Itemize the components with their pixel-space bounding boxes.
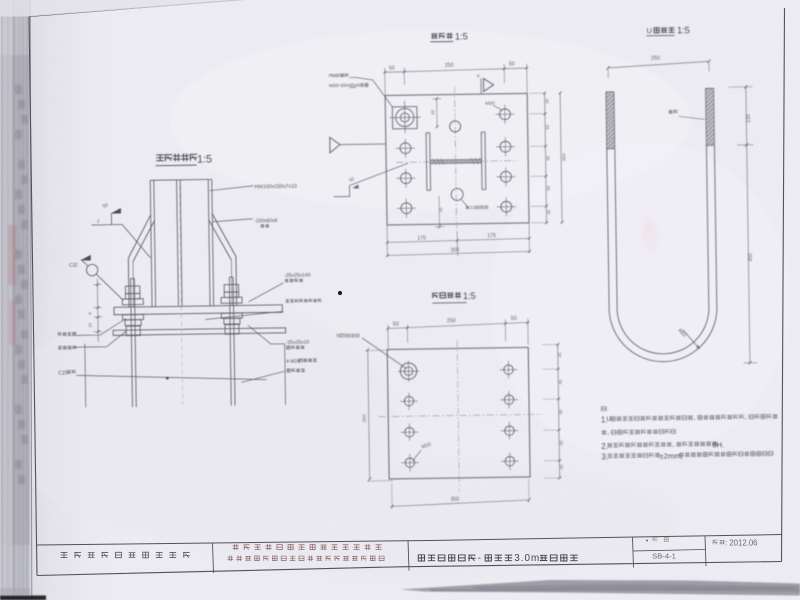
svg-text:,: , <box>672 442 674 449</box>
svg-text:3.0m: 3.0m <box>514 553 539 564</box>
svg-text:65: 65 <box>430 109 435 115</box>
svg-text:15: 15 <box>87 322 92 327</box>
svg-text:45: 45 <box>546 209 551 214</box>
svg-text:50: 50 <box>511 316 517 322</box>
svg-text:1:5: 1:5 <box>455 30 468 41</box>
svg-text:250: 250 <box>447 318 456 324</box>
svg-text:,: , <box>607 430 609 437</box>
svg-text:M20-60x60x6: M20-60x60x6 <box>329 83 360 89</box>
svg-text:: 2012.06: : 2012.06 <box>725 539 758 548</box>
svg-text:1:5: 1:5 <box>677 25 690 35</box>
svg-text:1:5: 1:5 <box>197 153 212 165</box>
svg-text:M20: M20 <box>337 333 346 339</box>
svg-text:60: 60 <box>558 409 563 414</box>
svg-text:-25x25x10: -25x25x10 <box>286 339 310 345</box>
svg-text:4-M24: 4-M24 <box>286 359 300 365</box>
svg-text:45: 45 <box>557 352 562 357</box>
svg-text:22: 22 <box>470 205 476 211</box>
svg-text::: : <box>607 406 609 413</box>
svg-text:250: 250 <box>651 56 660 62</box>
svg-text:60: 60 <box>546 155 551 160</box>
svg-text:,: , <box>693 415 695 422</box>
svg-text:350: 350 <box>450 496 459 502</box>
svg-text:PM20: PM20 <box>329 73 341 79</box>
svg-text:130: 130 <box>746 114 752 123</box>
svg-text:50: 50 <box>393 321 399 327</box>
svg-text:175: 175 <box>417 235 426 241</box>
svg-text:350: 350 <box>450 247 459 253</box>
svg-text:350: 350 <box>362 414 368 423</box>
svg-text:2.: 2. <box>601 442 608 451</box>
svg-text:6H.: 6H. <box>712 440 724 449</box>
svg-text:-25x25x140: -25x25x140 <box>284 272 310 278</box>
svg-text:C25: C25 <box>58 370 68 376</box>
svg-text:CJ2: CJ2 <box>69 263 78 269</box>
svg-text:50: 50 <box>389 65 395 71</box>
svg-text:45: 45 <box>559 464 564 469</box>
svg-text:350: 350 <box>562 153 568 161</box>
svg-text:-: - <box>478 553 481 564</box>
svg-text:60: 60 <box>558 379 563 384</box>
svg-text:U: U <box>646 26 651 35</box>
svg-text:-150x60x8: -150x60x8 <box>254 218 278 224</box>
svg-text:3.: 3. <box>601 452 608 461</box>
svg-text:45: 45 <box>438 207 443 213</box>
svg-text:50: 50 <box>509 61 515 67</box>
svg-text:175: 175 <box>487 233 496 239</box>
svg-text:250: 250 <box>445 62 454 68</box>
svg-text:SB-4-1: SB-4-1 <box>652 552 676 561</box>
svg-text:60: 60 <box>546 185 551 190</box>
svg-text:60: 60 <box>559 440 564 445</box>
svg-text:45: 45 <box>545 98 550 103</box>
svg-text:HW150x150x7x10: HW150x150x7x10 <box>254 184 297 191</box>
svg-text:350: 350 <box>748 253 754 262</box>
svg-text:,: , <box>745 414 747 421</box>
svg-text:65: 65 <box>545 124 550 129</box>
svg-text:1:5: 1:5 <box>463 291 476 301</box>
